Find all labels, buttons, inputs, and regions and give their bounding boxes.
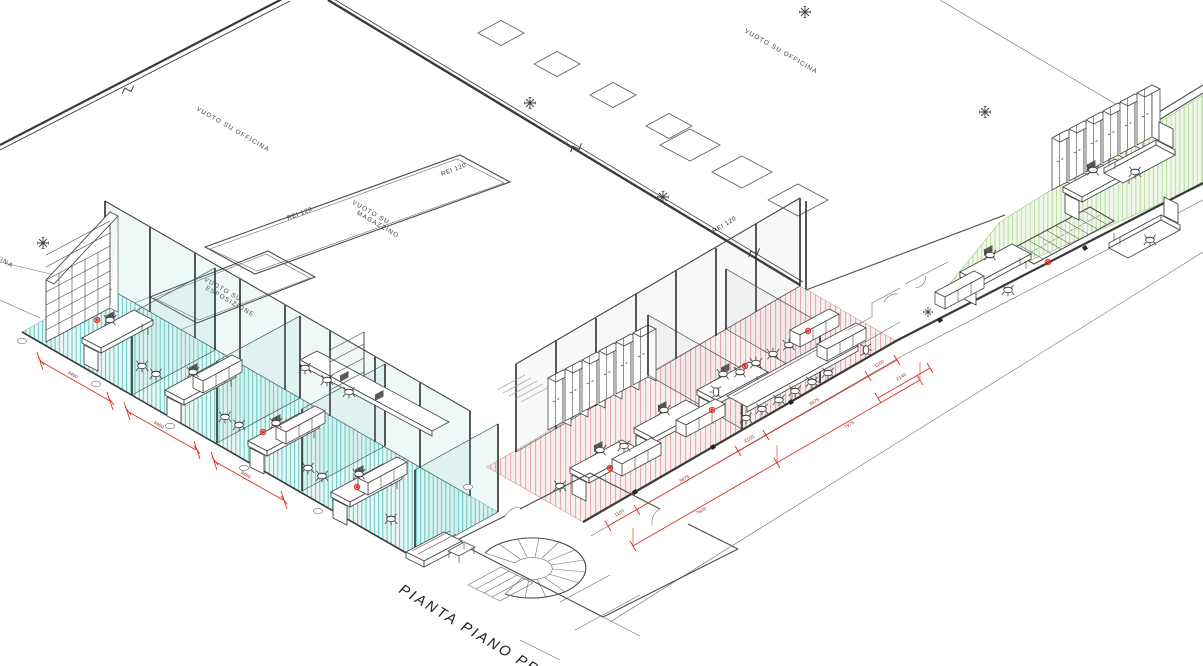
vent-icon [38,238,49,249]
wardrobe [1137,85,1160,145]
dim-label: 1100 [613,508,625,518]
office-chair [1002,285,1014,297]
skylight [478,21,524,46]
vent-icon [800,7,811,18]
fire-rating-label-3: REI 120 [711,215,737,235]
door-swing-arc [884,276,926,302]
skylight [712,156,772,188]
dim-pink-right [875,363,933,403]
fire-rating-label-1: REI 120 [286,206,313,222]
perimeter-wall-topleft [0,0,290,150]
spiral-staircase [468,538,586,601]
void-officina-label: VUOTO SU OFFICINA [195,106,271,154]
skylight [590,83,636,108]
right-roof-boundary [940,0,1203,128]
fire-rating-label-2: REI 120 [440,162,467,178]
vent-icon [980,107,991,118]
door-swing-arc [652,509,660,525]
dim-label: 3460 [153,420,165,430]
door-swing-arc [505,507,521,516]
dim-label: 7800 [695,506,707,516]
skylight [660,129,720,161]
isometric-floor-plan: VUOTO SU OFFICINA VUOTO SU OFFICINA VUOT… [0,0,1203,666]
roof-vents [38,7,991,249]
dim-label: 2140 [895,372,907,382]
void-officina-label-clipped: VUOTO SU OFFICINA [0,222,15,270]
lower-rooms-walls [520,575,640,660]
floor-plan-drawing: VUOTO SU OFFICINA VUOTO SU OFFICINA VUOT… [0,0,1203,666]
dim-label: 3460 [67,370,79,380]
dim-label: 7975 [843,420,855,430]
skylight [534,52,580,77]
vent-icon [525,98,536,109]
skylight [646,114,692,139]
void-officina-label-right: VUOTO SU OFFICINA [743,28,819,76]
wall-break-mark [120,84,135,96]
junction-mark [924,308,933,317]
vent-icon [658,192,669,203]
dim-label: 1100 [873,359,885,369]
dim-label: 3460 [240,470,252,480]
